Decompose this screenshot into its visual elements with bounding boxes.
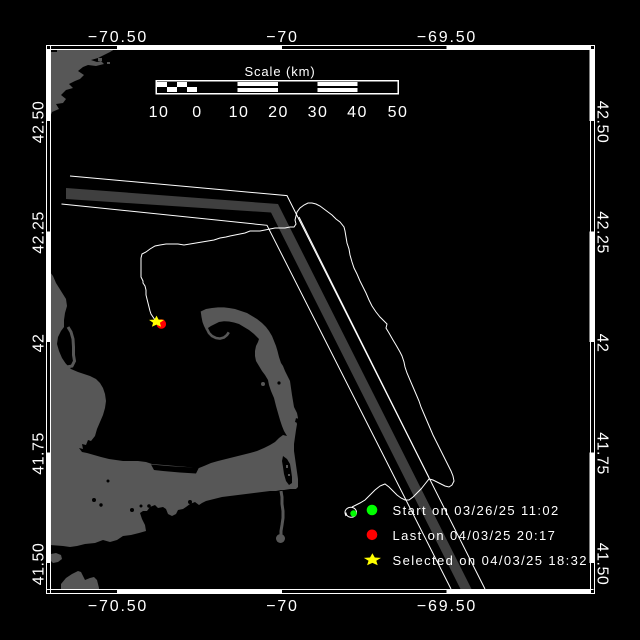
svg-text:10: 10 [229, 104, 250, 121]
svg-text:41.50: 41.50 [594, 543, 611, 586]
svg-text:Last on 04/03/25 20:17: Last on 04/03/25 20:17 [393, 528, 557, 543]
svg-text:−70: −70 [266, 29, 299, 46]
svg-text:−70: −70 [266, 598, 299, 615]
svg-text:20: 20 [268, 104, 289, 121]
svg-text:Scale (km): Scale (km) [244, 64, 315, 79]
svg-text:41.75: 41.75 [594, 432, 611, 475]
svg-text:0: 0 [192, 104, 202, 121]
svg-text:42: 42 [31, 334, 48, 353]
svg-text:−70.50: −70.50 [88, 29, 148, 46]
svg-text:30: 30 [308, 104, 329, 121]
svg-text:42.50: 42.50 [594, 101, 611, 144]
svg-text:40: 40 [347, 104, 368, 121]
svg-text:Start on 03/26/25 11:02: Start on 03/26/25 11:02 [393, 503, 560, 518]
svg-text:42.25: 42.25 [31, 211, 48, 254]
svg-text:41.50: 41.50 [31, 543, 48, 586]
svg-text:50: 50 [388, 104, 409, 121]
svg-text:42.50: 42.50 [31, 101, 48, 144]
svg-text:−70.50: −70.50 [88, 598, 148, 615]
svg-text:−69.50: −69.50 [417, 29, 477, 46]
svg-text:42: 42 [594, 334, 611, 353]
svg-text:42.25: 42.25 [594, 211, 611, 254]
svg-text:41.75: 41.75 [31, 432, 48, 475]
svg-text:10: 10 [149, 104, 170, 121]
svg-text:−69.50: −69.50 [417, 598, 477, 615]
svg-text:Selected on 04/03/25 18:32: Selected on 04/03/25 18:32 [393, 553, 588, 568]
